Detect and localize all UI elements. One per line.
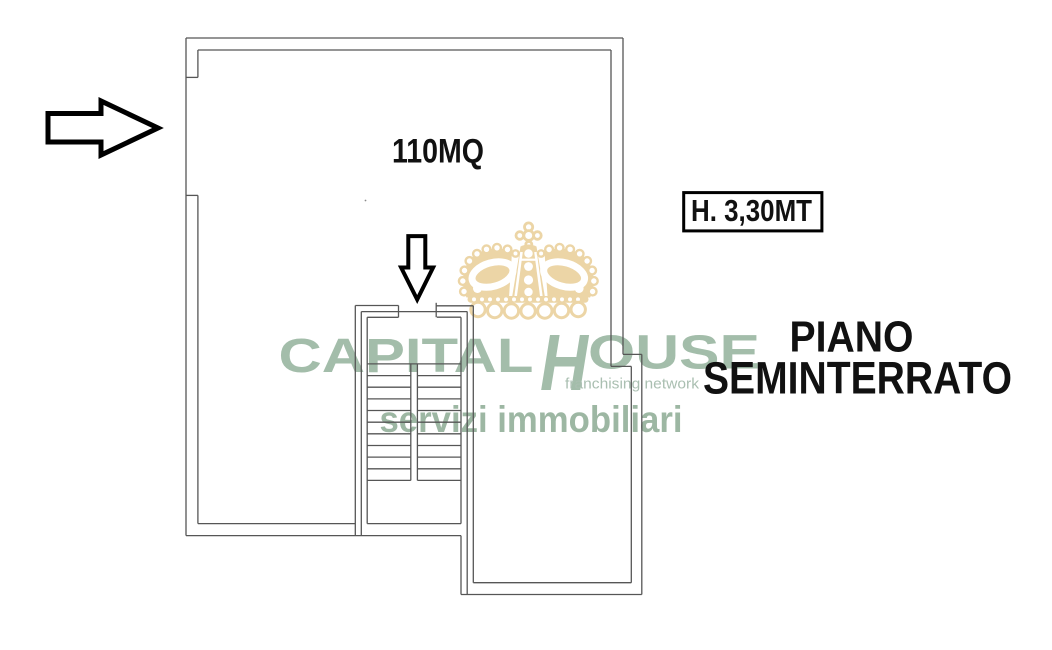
svg-text:SEMINTERRATO: SEMINTERRATO [703, 353, 1012, 404]
svg-text:H. 3,30MT: H. 3,30MT [691, 193, 812, 228]
svg-text:110MQ: 110MQ [392, 133, 484, 171]
svg-text:franchising network: franchising network [565, 376, 700, 393]
svg-text:H: H [540, 318, 590, 407]
